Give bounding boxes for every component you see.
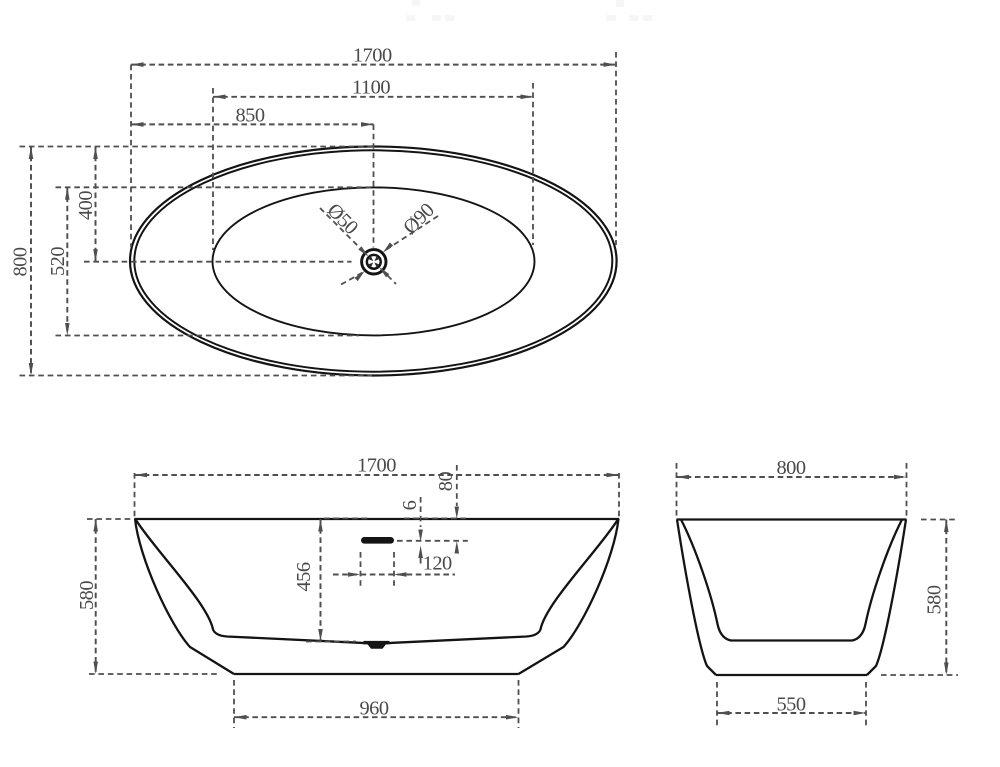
svg-text:1700: 1700: [353, 45, 392, 67]
svg-text:960: 960: [359, 698, 388, 720]
svg-text:1700: 1700: [357, 455, 396, 477]
svg-text:1100: 1100: [352, 77, 390, 99]
svg-text:580: 580: [924, 585, 946, 614]
svg-text:800: 800: [10, 247, 32, 276]
svg-text:456: 456: [293, 562, 315, 591]
svg-text:850: 850: [235, 105, 264, 127]
svg-text:800: 800: [776, 457, 805, 479]
svg-text:80: 80: [435, 472, 457, 492]
svg-text:520: 520: [47, 247, 69, 276]
svg-text:120: 120: [423, 553, 452, 575]
svg-text:400: 400: [75, 191, 97, 220]
svg-text:550: 550: [776, 693, 805, 715]
svg-text:6: 6: [399, 500, 421, 510]
svg-text:580: 580: [76, 581, 98, 610]
